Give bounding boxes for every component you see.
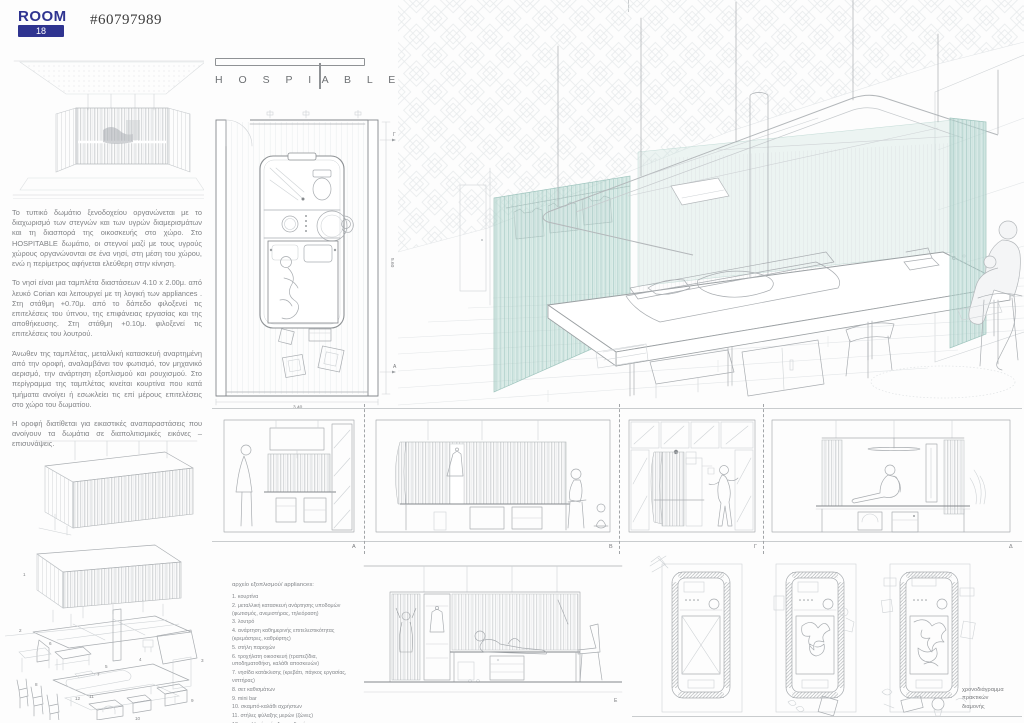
suspended-room-render — [8, 50, 204, 200]
timeline-caption: χρονοδιάγραμμα πρακτικών διαμονής — [962, 686, 1022, 711]
description-paragraph-3: Άνωθεν της ταμπλέτας, μεταλλική κατασκευ… — [12, 349, 202, 410]
section-e-label: E — [614, 698, 618, 704]
legend-item: 8. σετ καθισμάτων — [232, 687, 354, 695]
legend-item: 3. λουτρό — [232, 619, 354, 627]
section-a-label: A — [352, 544, 356, 550]
exploded-number-10: 10 — [135, 716, 141, 720]
legend-list: 1. κουρτίνα 2. μεταλλική κατασκευή ανάρτ… — [232, 594, 354, 723]
timeline-plan-2 — [762, 552, 866, 718]
entry-number: #60797989 — [90, 12, 162, 29]
exploded-number-9: 9 — [191, 698, 194, 703]
timeline-plan-1 — [648, 552, 752, 718]
exploded-number-1: 1 — [23, 572, 26, 577]
competition-board: ROOM 18 #60797989 Το τυπικό δωμάτιο ξενο… — [0, 0, 1024, 723]
plan-dim-right: 5.60 — [389, 258, 395, 268]
section-divider-2 — [619, 404, 620, 554]
hospitable-logotype: H O S P I A B L E — [215, 58, 365, 89]
section-b-drawing — [370, 414, 616, 540]
project-description: Το τυπικό δωμάτιο ξενοδοχείου οργανώνετα… — [12, 208, 202, 459]
room-logo-number: 18 — [18, 25, 64, 37]
legend-item: 4. ανάρτηση καθημερινής επιτελεστικότητα… — [232, 628, 354, 643]
section-c-label: Γ — [754, 544, 757, 550]
description-paragraph-2: Το νησί είναι μια ταμπλέτα διαστάσεων 4.… — [12, 278, 202, 339]
section-e-drawing: E — [362, 560, 624, 720]
exploded-axonometric: 1 2 3 4 5 6 7 12 — [5, 540, 237, 720]
curtain-box-axonometric — [15, 436, 205, 538]
timeline-caption-line3: διαμονής — [962, 703, 1022, 711]
legend-item: 9. mini bar — [232, 696, 354, 704]
legend-item: 5. στήλη παροχών — [232, 645, 354, 653]
description-paragraph-1: Το τυπικό δωμάτιο ξενοδοχείου οργανώνετα… — [12, 208, 202, 269]
exploded-number-8: 8 — [35, 682, 38, 687]
logotype-bar — [215, 58, 365, 66]
legend-item: 2. μεταλλική κατασκευή ανάρτησης υποδομώ… — [232, 603, 354, 618]
plans-bottom-rule — [632, 716, 1022, 717]
legend-item: 7. νησίδα κατάκλισης (κρεβάτι, πάγκος ερ… — [232, 670, 354, 685]
exploded-number-5: 5 — [105, 664, 108, 669]
main-perspective-render — [398, 0, 1024, 408]
exploded-number-3: 3 — [201, 658, 204, 663]
plan-marker-bottom: A — [393, 364, 397, 370]
plan-marker-top: Γ — [393, 132, 396, 138]
section-divider-3 — [763, 404, 764, 554]
exploded-number-4: 4 — [139, 657, 142, 662]
legend-item: 10. σκαμπό-καλάθι αχρήστων — [232, 704, 354, 712]
floor-plan: 5.60 3.40 Γ A — [210, 110, 400, 410]
legend-item: 6. τροχήλατη οικοσκευή (τραπεζίδια, υποδ… — [232, 654, 354, 669]
room-logo-word: ROOM — [18, 10, 64, 24]
exploded-number-12: 12 — [75, 696, 81, 701]
section-a-drawing — [218, 414, 360, 540]
room-18-logo: ROOM 18 — [18, 10, 64, 37]
legend-title: αρχείο εξοπλισμού/ appliances: — [232, 582, 354, 588]
band-top-rule — [212, 408, 1022, 409]
timeline-caption-line2: πρακτικών — [962, 694, 1022, 702]
section-d-drawing — [766, 414, 1016, 540]
band-bottom-rule — [212, 541, 1022, 542]
logotype-t-glyph — [319, 63, 321, 89]
exploded-number-6: 6 — [49, 641, 52, 646]
section-divider-1 — [364, 404, 365, 554]
logotype-letters-right: A B L E — [322, 74, 402, 86]
exploded-number-7: 7 — [97, 672, 100, 677]
legend-item: 1. κουρτίνα — [232, 594, 354, 602]
section-b-label: B — [609, 544, 613, 550]
exploded-number-11: 11 — [89, 694, 94, 699]
section-c-drawing — [624, 414, 760, 540]
appliances-legend: αρχείο εξοπλισμού/ appliances: 1. κουρτί… — [232, 582, 354, 723]
section-d-label: Δ — [1009, 544, 1013, 550]
exploded-number-2: 2 — [19, 628, 22, 633]
legend-item: 11. στήλες φύλαξης μερών (ζώνες) — [232, 713, 354, 721]
timeline-caption-line1: χρονοδιάγραμμα — [962, 686, 1022, 694]
logotype-letters-left: H O S P I — [215, 74, 318, 86]
